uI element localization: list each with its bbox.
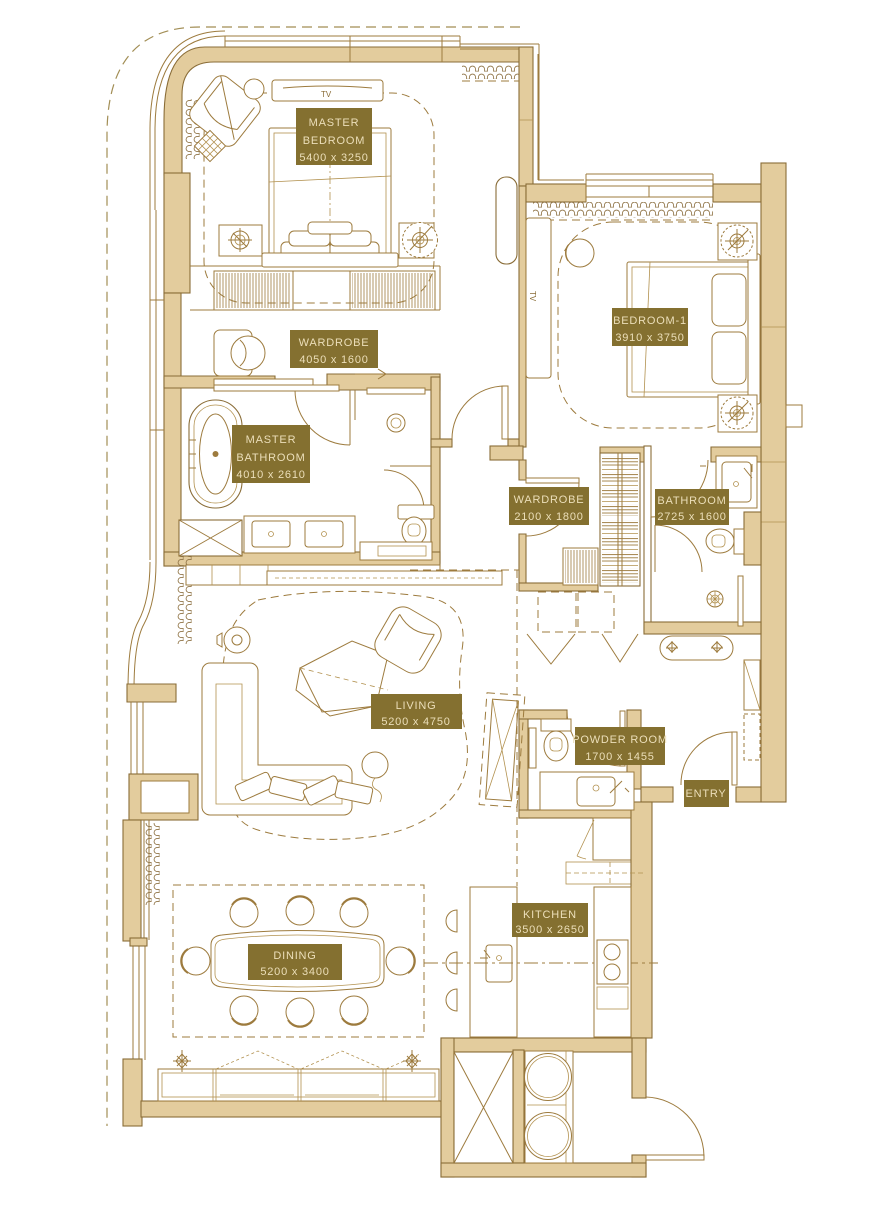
svg-text:BEDROOM: BEDROOM: [303, 135, 365, 147]
svg-text:MASTER: MASTER: [309, 117, 360, 129]
svg-text:3910 x 3750: 3910 x 3750: [615, 332, 684, 344]
svg-text:1700 x 1455: 1700 x 1455: [585, 751, 654, 763]
svg-text:4010 x 2610: 4010 x 2610: [236, 469, 305, 481]
svg-text:TV: TV: [321, 90, 332, 99]
svg-text:2100 x 1800: 2100 x 1800: [514, 511, 583, 523]
svg-text:5200 x 4750: 5200 x 4750: [381, 716, 450, 728]
svg-text:BEDROOM-1: BEDROOM-1: [613, 315, 687, 327]
svg-text:ENTRY: ENTRY: [685, 788, 726, 800]
svg-text:KITCHEN: KITCHEN: [523, 909, 577, 921]
svg-text:DINING: DINING: [273, 950, 316, 962]
svg-text:BATHROOM: BATHROOM: [657, 495, 726, 507]
svg-text:BATHROOM: BATHROOM: [236, 452, 305, 464]
svg-text:5200 x 3400: 5200 x 3400: [260, 966, 329, 978]
svg-text:TV: TV: [528, 291, 537, 302]
svg-text:2725 x 1600: 2725 x 1600: [657, 511, 726, 523]
svg-text:LIVING: LIVING: [396, 700, 437, 712]
svg-text:POWDER ROOM: POWDER ROOM: [572, 734, 668, 746]
svg-text:5400 x 3250: 5400 x 3250: [299, 152, 368, 164]
svg-text:MASTER: MASTER: [246, 434, 297, 446]
svg-text:3500 x 2650: 3500 x 2650: [515, 924, 584, 936]
svg-text:WARDROBE: WARDROBE: [299, 337, 370, 349]
svg-text:4050 x 1600: 4050 x 1600: [299, 354, 368, 366]
svg-text:WARDROBE: WARDROBE: [514, 494, 585, 506]
